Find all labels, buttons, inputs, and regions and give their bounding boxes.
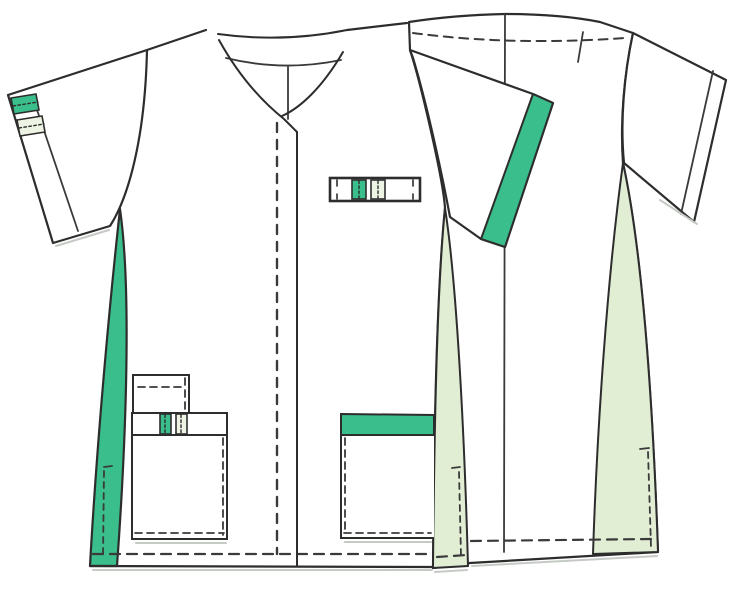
back-right-sleeve [622, 33, 726, 222]
drawing-canvas [0, 0, 750, 590]
back-view [409, 14, 726, 572]
left-upper-pocket [133, 375, 189, 413]
front-right-pocket [341, 414, 434, 538]
front-view [8, 23, 441, 570]
chest-badge-strip [330, 178, 420, 201]
left-pocket-body [132, 435, 227, 539]
front-left-side-panel [90, 209, 127, 566]
right-pocket-body [341, 435, 434, 538]
scrub-top-flat-sketch [0, 0, 750, 590]
front-hem-edge [90, 566, 433, 567]
right-pocket-band-green [341, 414, 434, 435]
